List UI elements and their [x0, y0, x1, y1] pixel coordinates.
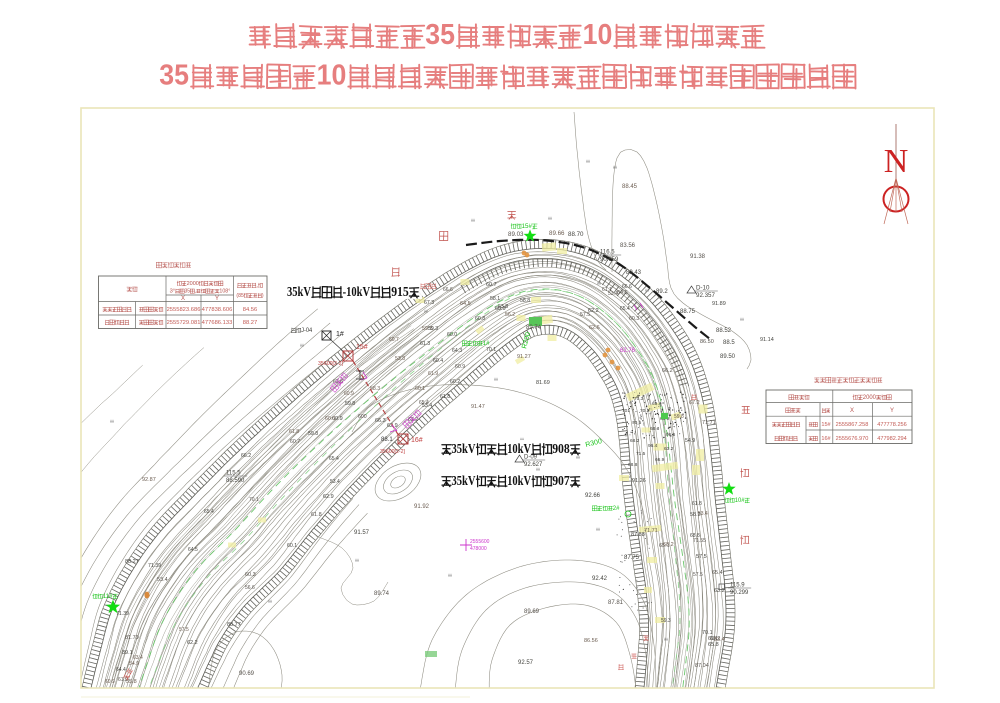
svg-text:65.4: 65.4 [712, 570, 723, 576]
svg-text:64.5: 64.5 [617, 290, 628, 296]
svg-text:59.8: 59.8 [345, 401, 355, 407]
svg-text:2555867.258: 2555867.258 [836, 422, 869, 428]
svg-text:60.9: 60.9 [105, 679, 115, 685]
svg-text:66.2: 66.2 [662, 368, 673, 374]
svg-text:11#: 11# [103, 593, 113, 600]
svg-text:81.79: 81.79 [125, 635, 139, 641]
svg-text:Y: Y [890, 408, 894, 414]
svg-text:60.3: 60.3 [245, 572, 256, 578]
svg-text:2555823.686: 2555823.686 [167, 307, 201, 313]
svg-text:35600[2-2]: 35600[2-2] [318, 361, 343, 367]
svg-text:53.4: 53.4 [330, 479, 340, 485]
svg-text:59.8: 59.8 [308, 431, 318, 437]
svg-text:68.3: 68.3 [650, 426, 660, 432]
svg-text:16#: 16# [411, 437, 423, 444]
svg-text:61.8: 61.8 [692, 501, 702, 507]
svg-text:67.3: 67.3 [424, 300, 434, 306]
svg-text:57.5: 57.5 [693, 572, 703, 578]
svg-text:87.75: 87.75 [624, 555, 640, 561]
svg-text:600: 600 [358, 414, 367, 420]
svg-text:91.89: 91.89 [712, 301, 726, 307]
svg-text:477686.133: 477686.133 [202, 320, 233, 326]
svg-text:60.2: 60.2 [450, 379, 460, 385]
svg-text:89.74: 89.74 [374, 591, 390, 597]
svg-text:2000: 2000 [863, 394, 877, 401]
svg-text:915: 915 [391, 284, 409, 299]
svg-text:54.9: 54.9 [685, 438, 695, 444]
svg-text:59.8: 59.8 [674, 414, 684, 420]
svg-text:88.52: 88.52 [716, 328, 732, 334]
svg-text:88.75: 88.75 [680, 309, 696, 315]
svg-text:60.8: 60.8 [475, 316, 485, 322]
svg-text:90.659: 90.659 [600, 257, 619, 263]
svg-text:88.70: 88.70 [568, 231, 584, 238]
svg-text:2000: 2000 [187, 281, 199, 287]
svg-text:83.56: 83.56 [620, 243, 636, 249]
svg-text:56.2: 56.2 [505, 312, 515, 318]
svg-text:54.9: 54.9 [129, 661, 139, 667]
svg-text:62.9: 62.9 [323, 494, 334, 500]
svg-text:N: N [884, 143, 909, 180]
svg-text:70.5: 70.5 [632, 420, 642, 426]
svg-text:89.03: 89.03 [508, 231, 524, 238]
svg-text:61.3: 61.3 [420, 341, 430, 347]
svg-text:64.5: 64.5 [460, 301, 471, 307]
svg-text:478000: 478000 [470, 546, 487, 552]
svg-text:115.9: 115.9 [730, 583, 745, 589]
svg-text:66.6: 66.6 [443, 287, 453, 293]
svg-text:84.56: 84.56 [243, 307, 258, 313]
svg-text:55.8: 55.8 [126, 679, 137, 685]
svg-text:89.69: 89.69 [524, 609, 540, 615]
svg-text:57.5: 57.5 [696, 554, 707, 560]
svg-text:2555600: 2555600 [470, 539, 490, 545]
svg-text:1#: 1# [483, 340, 490, 347]
svg-text:53.4: 53.4 [714, 637, 725, 643]
svg-text:60.7: 60.7 [486, 282, 497, 288]
svg-text:70.1: 70.1 [486, 347, 496, 353]
svg-text:65.4: 65.4 [620, 306, 630, 312]
svg-text:89.66: 89.66 [549, 230, 565, 237]
svg-text:88.27: 88.27 [243, 320, 258, 326]
svg-text:61.8: 61.8 [311, 512, 322, 518]
svg-text:87.81: 87.81 [608, 600, 624, 606]
svg-text:60.7: 60.7 [290, 439, 300, 445]
svg-text:89.43: 89.43 [626, 270, 642, 276]
svg-text:35: 35 [185, 289, 191, 295]
svg-text:92.87: 92.87 [142, 477, 156, 483]
svg-text:58.1: 58.1 [490, 296, 500, 302]
svg-text:70.1: 70.1 [249, 497, 259, 503]
svg-text:61.9: 61.9 [428, 371, 438, 377]
svg-text:35600[2-2]: 35600[2-2] [380, 449, 405, 455]
svg-text:68.8: 68.8 [628, 462, 638, 468]
svg-text:66.2: 66.2 [241, 453, 251, 459]
svg-text:68.2: 68.2 [663, 542, 674, 548]
svg-text:57.5: 57.5 [580, 312, 590, 318]
svg-text:60.9: 60.9 [344, 391, 354, 397]
svg-text:91.47: 91.47 [471, 404, 485, 410]
svg-text:10kV: 10kV [507, 473, 531, 488]
svg-text:2#: 2# [613, 505, 620, 512]
svg-text:91.92: 91.92 [414, 504, 430, 510]
svg-text:63.2: 63.2 [714, 588, 725, 594]
svg-text:60.0: 60.0 [447, 332, 457, 338]
svg-text:62.76: 62.76 [620, 348, 636, 354]
svg-text:65.4: 65.4 [204, 509, 214, 515]
svg-text:59.3: 59.3 [661, 618, 671, 624]
svg-text:15#: 15# [356, 344, 368, 351]
svg-text:88.77: 88.77 [227, 622, 241, 628]
svg-text:63.8: 63.8 [498, 304, 508, 310]
svg-text:88.590: 88.590 [226, 478, 245, 484]
svg-text:71.5: 71.5 [636, 451, 646, 457]
svg-text:92.66: 92.66 [585, 493, 601, 499]
svg-text:35kV: 35kV [287, 284, 311, 299]
svg-text:477982.294: 477982.294 [877, 436, 907, 442]
svg-text:71.39: 71.39 [148, 563, 161, 569]
svg-text:89.50: 89.50 [720, 354, 736, 360]
svg-text:91.57: 91.57 [354, 530, 370, 536]
svg-text:88.1: 88.1 [381, 437, 393, 443]
svg-text:2555729.081: 2555729.081 [167, 320, 201, 326]
svg-text:89.74: 89.74 [526, 325, 542, 331]
svg-text:477838.606: 477838.606 [202, 307, 233, 313]
svg-text:10kV: 10kV [507, 441, 531, 456]
svg-text:): ) [262, 293, 264, 299]
svg-text:X: X [181, 296, 185, 302]
svg-text:15#: 15# [821, 422, 831, 428]
svg-text:66.3: 66.3 [375, 418, 386, 424]
svg-text:-10kV: -10kV [343, 284, 371, 299]
svg-text:71.71: 71.71 [644, 528, 658, 534]
svg-text:87.88: 87.88 [631, 532, 645, 538]
svg-text:,: , [195, 289, 196, 295]
svg-text:65.4: 65.4 [419, 400, 429, 406]
svg-text:56.6: 56.6 [245, 585, 255, 591]
svg-text:92.57: 92.57 [518, 660, 534, 666]
svg-text:88.5: 88.5 [723, 340, 735, 346]
svg-text:96.4: 96.4 [648, 443, 658, 449]
svg-text:60.9: 60.9 [455, 364, 465, 370]
svg-text:701: 701 [622, 408, 630, 414]
svg-text:10#: 10# [735, 497, 745, 504]
svg-text:66.9: 66.9 [655, 457, 665, 463]
svg-text:D-10: D-10 [696, 285, 710, 292]
svg-text:16#: 16# [821, 436, 831, 442]
svg-text:63.2: 63.2 [664, 446, 674, 452]
svg-text:68.8: 68.8 [690, 533, 700, 539]
svg-text:10: 10 [317, 60, 347, 92]
svg-text:1#: 1# [336, 331, 344, 338]
svg-text:15#: 15# [522, 223, 533, 230]
svg-text:64.3: 64.3 [452, 348, 462, 354]
svg-text:64.4: 64.4 [116, 667, 126, 673]
svg-text:62.6: 62.6 [589, 325, 600, 331]
svg-text:86.50: 86.50 [700, 339, 714, 345]
svg-text:35kV: 35kV [452, 441, 476, 456]
svg-text:477778.256: 477778.256 [877, 422, 907, 428]
svg-text:908: 908 [552, 441, 570, 456]
svg-text:115.5: 115.5 [226, 471, 241, 477]
svg-text:53.8: 53.8 [395, 356, 405, 362]
svg-text:116.5: 116.5 [600, 250, 615, 256]
svg-text:60.1: 60.1 [287, 543, 297, 549]
svg-text:108°: 108° [219, 289, 230, 295]
svg-text:61.8: 61.8 [289, 429, 299, 435]
svg-text:70.3: 70.3 [634, 396, 644, 402]
svg-text:907: 907 [552, 473, 570, 488]
svg-text:70.1: 70.1 [640, 408, 650, 414]
svg-text:62.2: 62.2 [187, 640, 198, 646]
svg-text:86.56: 86.56 [584, 638, 598, 644]
svg-text:53.4: 53.4 [157, 577, 168, 583]
svg-text:60.0: 60.0 [325, 416, 335, 422]
svg-text:90.69: 90.69 [239, 671, 255, 677]
svg-text:58.8: 58.8 [520, 298, 530, 304]
svg-text:61.1: 61.1 [602, 287, 612, 293]
svg-text:3°: 3° [170, 289, 176, 295]
svg-text:91.38: 91.38 [690, 254, 706, 260]
svg-text:35: 35 [159, 60, 189, 92]
svg-text:90.299: 90.299 [730, 590, 749, 596]
svg-text:2555676.970: 2555676.970 [836, 436, 869, 442]
svg-text:88.27: 88.27 [125, 559, 139, 565]
svg-text:60.4: 60.4 [433, 358, 443, 364]
svg-text:71.71: 71.71 [702, 420, 716, 426]
svg-text:69.4: 69.4 [652, 401, 662, 407]
svg-text:88.45: 88.45 [622, 184, 638, 190]
svg-text:60.3: 60.3 [629, 316, 639, 322]
svg-text:92.627: 92.627 [524, 462, 543, 468]
svg-text:58.3: 58.3 [690, 512, 701, 518]
svg-text:87.04: 87.04 [695, 663, 709, 669]
svg-text:68.2: 68.2 [630, 438, 640, 444]
svg-text:61.8: 61.8 [440, 394, 450, 400]
svg-text:96.6: 96.6 [666, 432, 676, 438]
svg-text:(85: (85 [236, 293, 243, 299]
svg-text:35: 35 [425, 19, 455, 51]
svg-text:57.5: 57.5 [179, 627, 189, 633]
svg-text:59.3: 59.3 [428, 326, 438, 332]
svg-text:J-04: J-04 [301, 328, 313, 334]
svg-text:92.42: 92.42 [592, 576, 608, 582]
svg-text:X: X [850, 408, 854, 414]
svg-text:60.1: 60.1 [415, 386, 425, 392]
svg-text:81.69: 81.69 [536, 380, 550, 386]
svg-text:89.1: 89.1 [122, 650, 133, 656]
svg-text:60.7: 60.7 [389, 337, 399, 343]
svg-text:91.14: 91.14 [760, 337, 774, 343]
svg-text:65.4: 65.4 [329, 456, 339, 462]
svg-text:67.2: 67.2 [689, 400, 700, 406]
svg-text:92.357: 92.357 [696, 292, 715, 299]
svg-text:10: 10 [583, 19, 613, 51]
svg-text:64.5: 64.5 [188, 547, 198, 553]
svg-text:Y: Y [215, 296, 219, 302]
svg-text:62.6: 62.6 [333, 379, 343, 385]
svg-text:35kV: 35kV [452, 473, 476, 488]
svg-text:91.27: 91.27 [517, 354, 531, 360]
svg-text:91.26: 91.26 [632, 478, 646, 484]
svg-text:89.2: 89.2 [656, 289, 668, 295]
svg-text:71.39: 71.39 [116, 611, 129, 617]
